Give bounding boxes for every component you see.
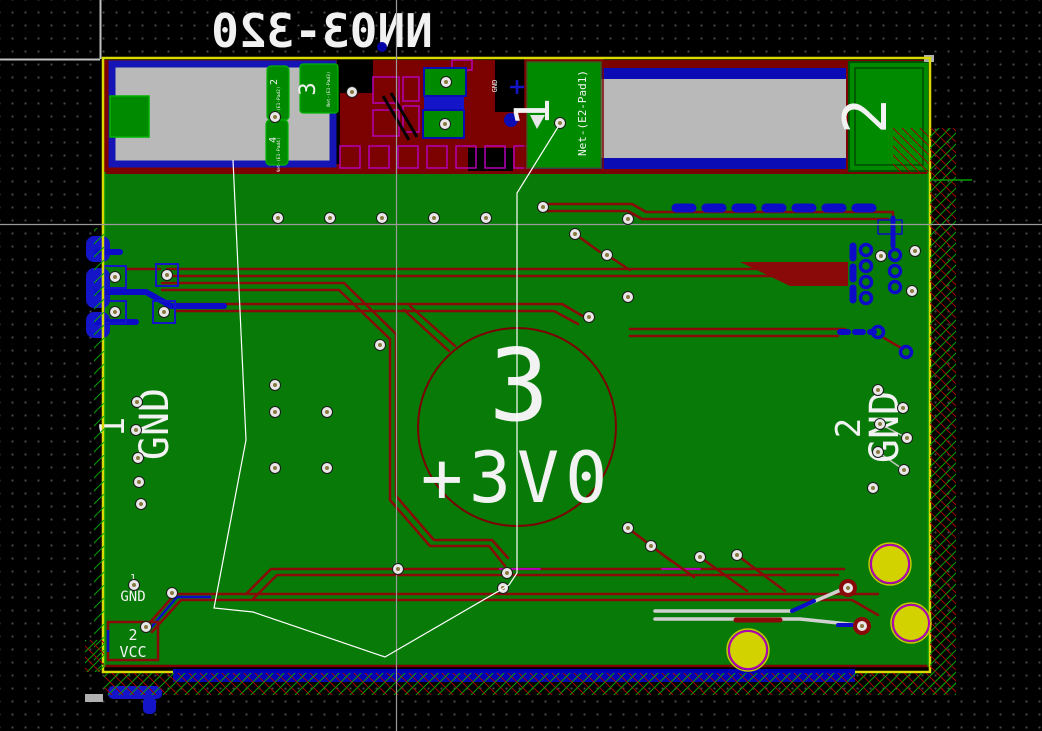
via[interactable] xyxy=(113,310,117,314)
via[interactable] xyxy=(901,406,905,410)
via[interactable] xyxy=(698,555,702,559)
title-via-dot xyxy=(377,42,387,52)
via[interactable] xyxy=(273,383,277,387)
via[interactable] xyxy=(325,466,329,470)
via[interactable] xyxy=(396,567,400,571)
module-pad-3-netlabel: Net-(E1-Pad3) xyxy=(326,71,332,106)
via[interactable] xyxy=(541,205,545,209)
via[interactable] xyxy=(484,216,488,220)
via[interactable] xyxy=(350,90,354,94)
pcb-canvas: NN03-320 2 Net-(E1-Pad2) 3 Net-(E1-Pad3)… xyxy=(0,0,1042,731)
via[interactable] xyxy=(132,583,136,587)
via[interactable] xyxy=(879,254,883,258)
via[interactable] xyxy=(273,466,277,470)
svg-text:GND: GND xyxy=(120,589,145,605)
via[interactable] xyxy=(878,422,882,426)
via[interactable] xyxy=(649,544,653,548)
via[interactable] xyxy=(905,436,909,440)
via[interactable] xyxy=(139,502,143,506)
module-pad-4[interactable]: 4 Net-(E1-Pad4) xyxy=(266,120,288,173)
via[interactable] xyxy=(325,410,329,414)
via[interactable] xyxy=(443,122,447,126)
via[interactable] xyxy=(273,115,277,119)
via[interactable] xyxy=(876,450,880,454)
via[interactable] xyxy=(134,428,138,432)
sheet-frame-lines xyxy=(0,0,101,60)
svg-text:VCC: VCC xyxy=(119,643,146,661)
module-pad-3[interactable]: 3 Net-(E1-Pad3) xyxy=(296,64,338,113)
via[interactable] xyxy=(573,232,577,236)
via[interactable] xyxy=(846,586,850,590)
via[interactable] xyxy=(137,480,141,484)
via[interactable] xyxy=(558,121,562,125)
via[interactable] xyxy=(444,80,448,84)
via[interactable] xyxy=(860,624,864,628)
antenna-pad-netlabel: Net-(E2-Pad1) xyxy=(576,70,589,156)
pcb-editor-viewport: NN03-320 2 Net-(E1-Pad2) 3 Net-(E1-Pad3)… xyxy=(0,0,1042,731)
via[interactable] xyxy=(113,275,117,279)
via[interactable] xyxy=(273,410,277,414)
via[interactable] xyxy=(735,553,739,557)
via[interactable] xyxy=(871,545,909,583)
sheet-title-mirrored[interactable]: NN03-320 xyxy=(211,4,433,58)
via[interactable] xyxy=(626,526,630,530)
via[interactable] xyxy=(902,468,906,472)
via[interactable] xyxy=(626,295,630,299)
keepout-patch xyxy=(893,128,930,172)
via[interactable] xyxy=(893,605,929,641)
via[interactable] xyxy=(170,591,174,595)
svg-text:2: 2 xyxy=(831,98,901,134)
module-pad-4-netlabel: Net-(E1-Pad4) xyxy=(276,137,282,172)
gnd-via-label: GND xyxy=(491,80,499,93)
via[interactable] xyxy=(505,571,509,575)
via[interactable] xyxy=(328,216,332,220)
via[interactable] xyxy=(587,315,591,319)
via[interactable] xyxy=(871,486,875,490)
via[interactable] xyxy=(136,456,140,460)
svg-text:3: 3 xyxy=(296,82,321,95)
center-pad-number: 3 xyxy=(489,327,549,444)
via[interactable] xyxy=(432,216,436,220)
via[interactable] xyxy=(913,249,917,253)
svg-text:2: 2 xyxy=(128,626,137,644)
via[interactable] xyxy=(380,216,384,220)
svg-text:NN03-320: NN03-320 xyxy=(211,4,433,58)
via[interactable] xyxy=(144,625,148,629)
via[interactable] xyxy=(276,216,280,220)
via[interactable] xyxy=(729,631,767,669)
svg-text:2: 2 xyxy=(269,79,280,85)
via[interactable] xyxy=(910,289,914,293)
via[interactable] xyxy=(135,400,139,404)
via[interactable] xyxy=(162,310,166,314)
module-left-square-pad[interactable] xyxy=(110,96,149,137)
via[interactable] xyxy=(626,217,630,221)
via[interactable] xyxy=(876,388,880,392)
via[interactable] xyxy=(605,253,609,257)
via[interactable] xyxy=(378,343,382,347)
via[interactable] xyxy=(165,273,169,277)
svg-text:1: 1 xyxy=(505,98,561,127)
